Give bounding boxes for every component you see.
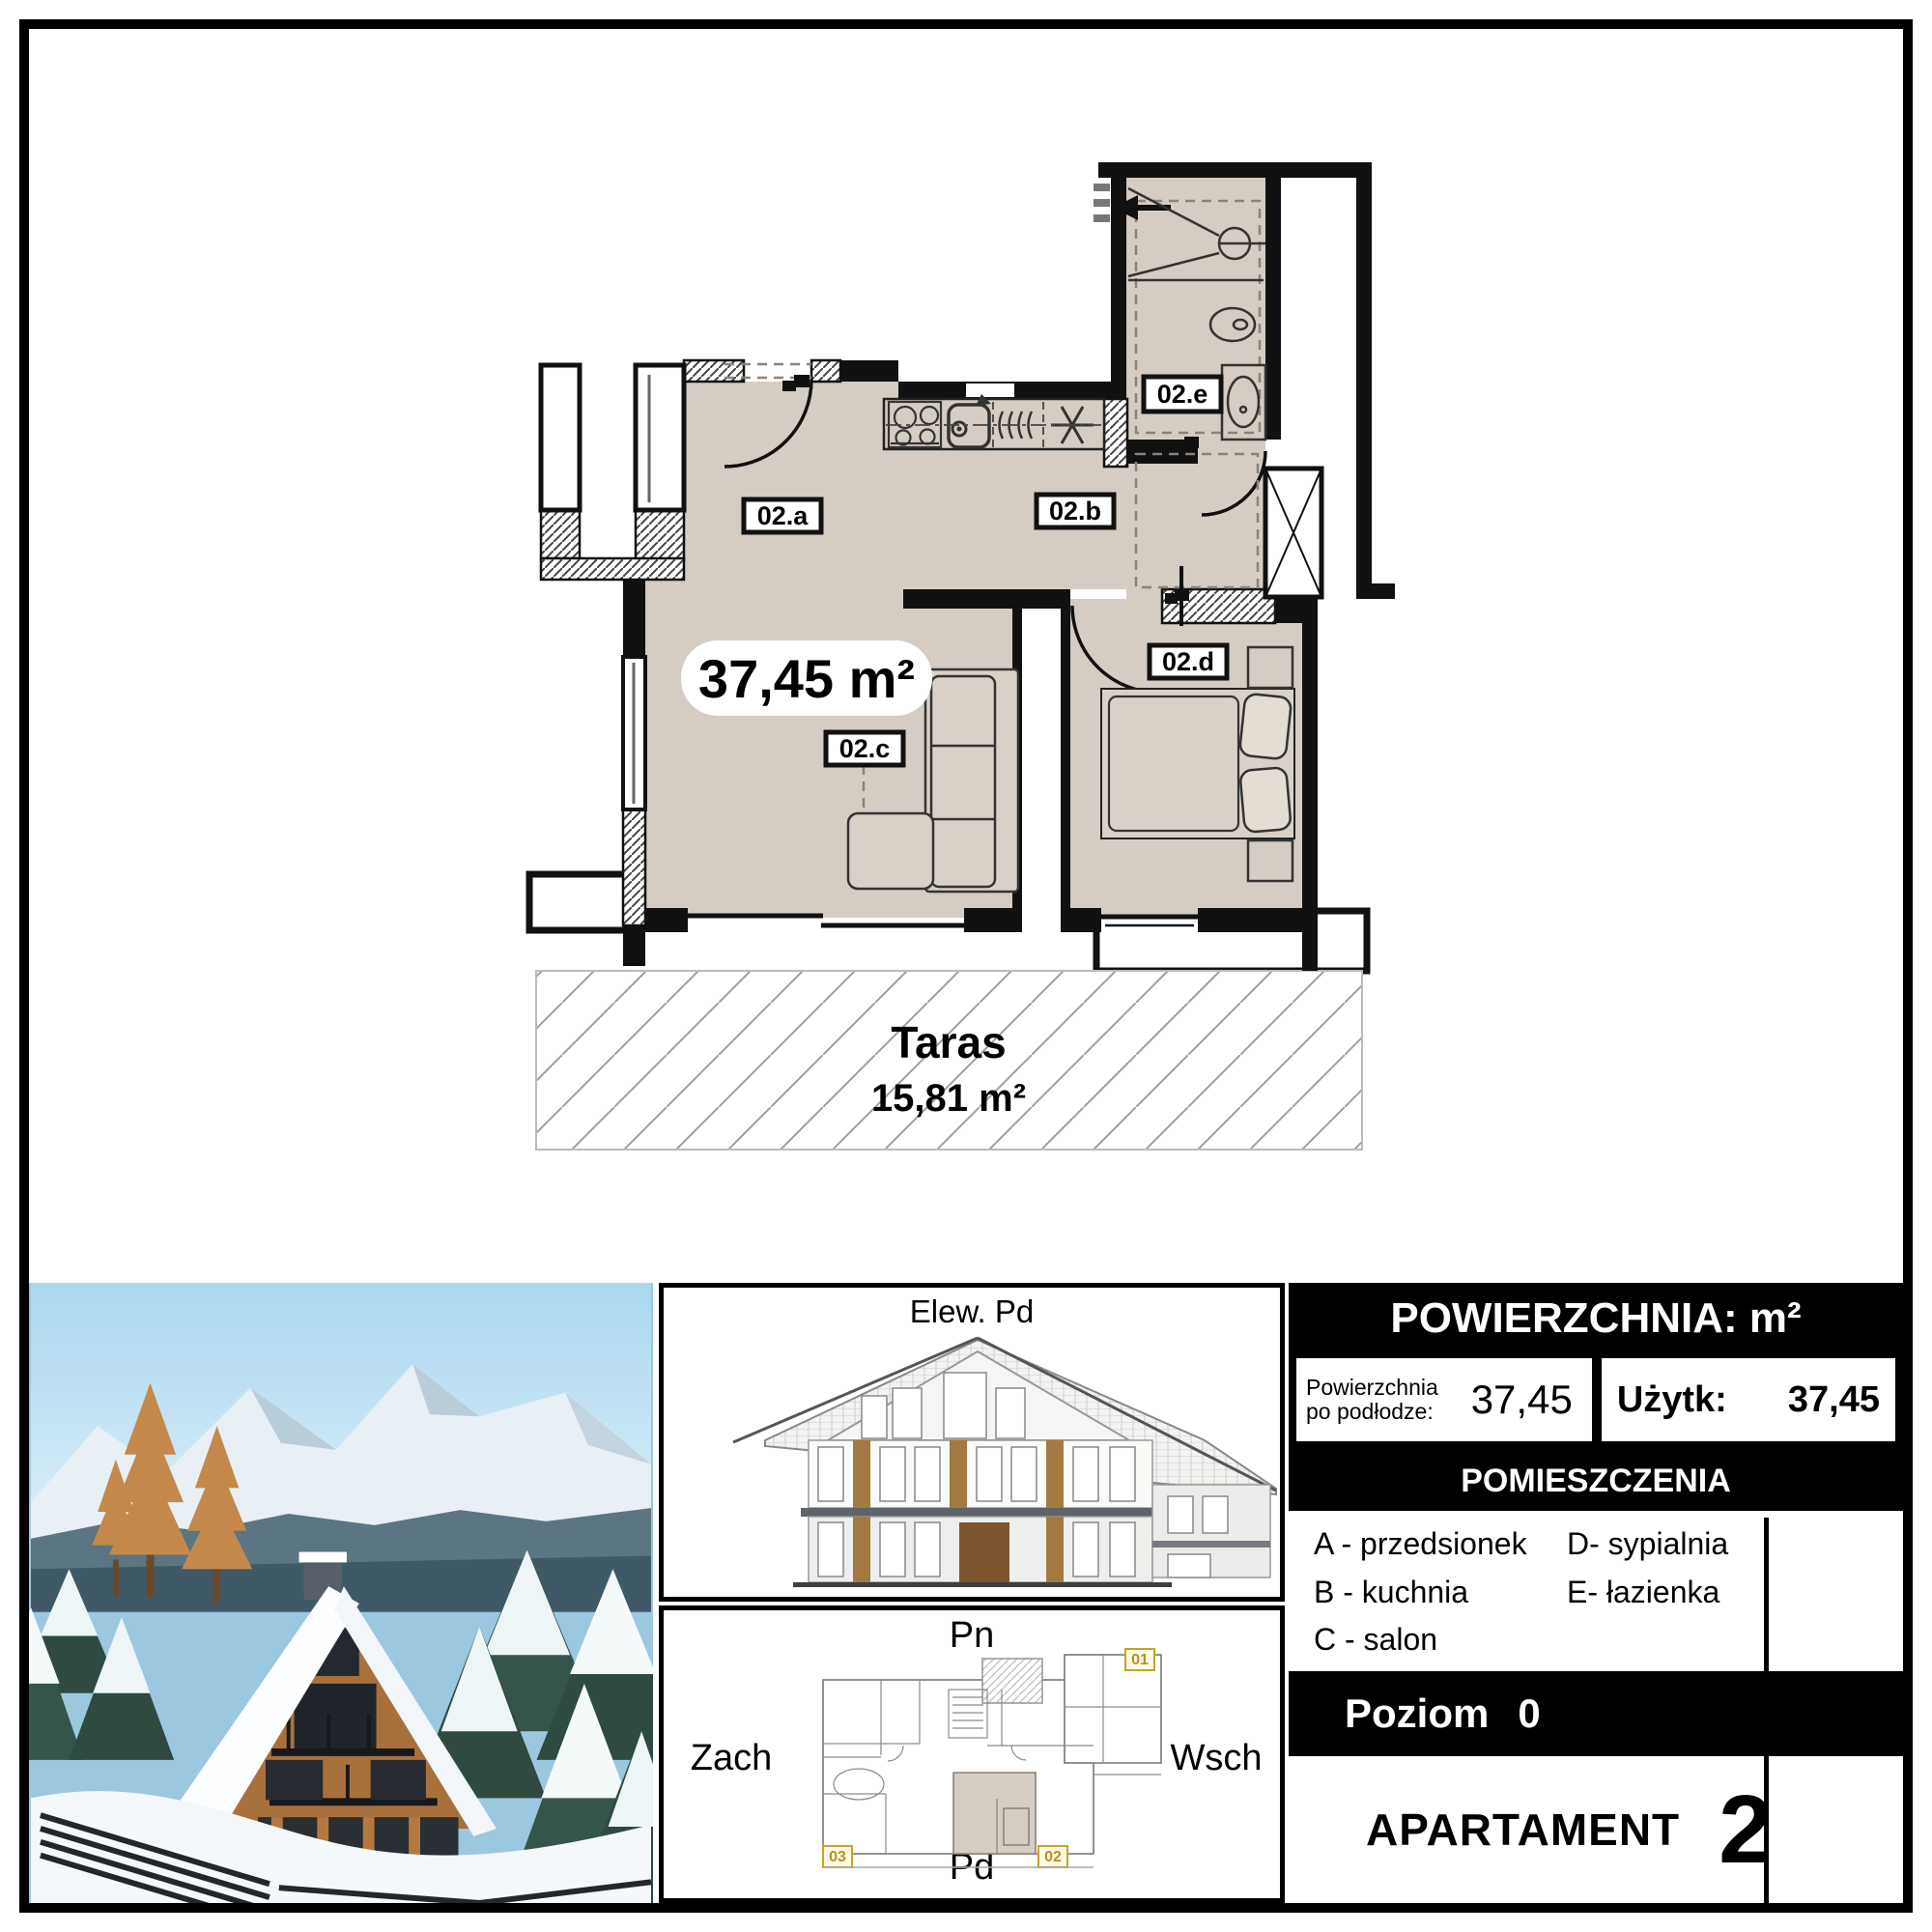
area-cells: Powierzchnia po podłodze: 37,45 Użytk: 3…: [1296, 1358, 1895, 1441]
shaft-x-box: [1265, 469, 1321, 597]
wall-ticks: [1094, 184, 1110, 222]
room-label-text: 02.a: [757, 501, 810, 530]
winter-photo-illustration: [29, 1283, 653, 1903]
floor-plan: Taras 15,81 m²: [406, 116, 1439, 1188]
room-label-02a: 02.a: [744, 499, 821, 532]
room-label-text: 02.c: [839, 734, 891, 763]
middle-column: Elew. Pd: [659, 1283, 1285, 1903]
room-label-02c: 02.c: [826, 732, 903, 765]
room-label-text: 02.e: [1157, 380, 1208, 409]
legend-item-c: C - salon: [1314, 1616, 1527, 1664]
unit-marker-03: 03: [829, 1849, 846, 1865]
info-panel-divider: [1764, 1518, 1769, 1903]
terrace-area: 15,81 m²: [871, 1077, 1026, 1120]
highlighted-unit-02: [953, 1773, 1036, 1854]
floor-area-label-line1: Powierzchnia: [1306, 1376, 1438, 1400]
floor-area-label-line2: po podłodze:: [1306, 1400, 1438, 1424]
rooms-header: POMIESZCZENIA: [1289, 1451, 1903, 1511]
floor-area-cell: Powierzchnia po podłodze: 37,45: [1296, 1358, 1592, 1441]
floor-area-value: 37,45: [1471, 1377, 1573, 1423]
bed: [1101, 689, 1294, 838]
unit-marker-02: 02: [1044, 1849, 1062, 1865]
room-label-02d: 02.d: [1150, 645, 1227, 678]
apartment-area-label: 37,45 m²: [681, 640, 932, 716]
level-label: Poziom: [1345, 1690, 1489, 1737]
compass-north: Pn: [950, 1615, 994, 1656]
exterior-wall-footing-left: [529, 874, 638, 930]
legend-left-column: A - przedsionek B - kuchnia C - salon: [1314, 1520, 1527, 1664]
legend-item-d: D- sypialnia: [1567, 1520, 1728, 1569]
room-label-text: 02.b: [1049, 497, 1101, 526]
level-band: Poziom 0: [1289, 1674, 1903, 1753]
rooms-legend: A - przedsionek B - kuchnia C - salon D-…: [1289, 1511, 1903, 1671]
terrace-name: Taras: [891, 1017, 1006, 1067]
compass-east: Wsch: [1171, 1738, 1263, 1778]
room-label-02e: 02.e: [1144, 377, 1221, 412]
level-value: 0: [1518, 1690, 1540, 1737]
pillow: [1239, 767, 1291, 833]
winter-house-photo: [29, 1283, 653, 1903]
legend-right-column: D- sypialnia E- łazienka: [1567, 1520, 1728, 1616]
pillow: [1239, 694, 1292, 760]
legend-item-b: B - kuchnia: [1314, 1569, 1527, 1617]
legend-item-a: A - przedsionek: [1314, 1520, 1527, 1569]
elevation-title: Elew. Pd: [910, 1293, 1034, 1329]
apartment-label: APARTAMENT: [1366, 1804, 1680, 1856]
kitchen-counter: [884, 394, 1104, 449]
area-header: POWIERZCHNIA: m²: [1289, 1283, 1903, 1354]
elevation-drawing: Elew. Pd: [664, 1288, 1280, 1587]
window-offset-column: [541, 365, 580, 510]
usable-area-cell: Użytk: 37,45: [1602, 1358, 1895, 1441]
usable-area-label: Użytk:: [1617, 1379, 1727, 1421]
usable-area-value: 37,45: [1788, 1379, 1880, 1421]
area-text: 37,45 m²: [698, 648, 915, 709]
site-plan-drawing: Pn Zach Wsch Pd: [664, 1610, 1280, 1889]
room-label-02b: 02.b: [1037, 495, 1114, 527]
legend-item-e: E- łazienka: [1567, 1569, 1728, 1617]
site-plan-panel: Pn Zach Wsch Pd: [659, 1605, 1285, 1903]
room-label-text: 02.d: [1162, 647, 1214, 676]
entrance-door: [959, 1522, 1009, 1582]
elevation-panel: Elew. Pd: [659, 1283, 1285, 1602]
info-panel: POWIERZCHNIA: m² Powierzchnia po podłodz…: [1289, 1283, 1903, 1903]
nightstand: [1248, 840, 1293, 881]
unit-marker-01: 01: [1131, 1652, 1149, 1668]
nightstand: [1248, 647, 1293, 688]
window-top-left: [636, 365, 684, 510]
terrace: Taras 15,81 m²: [536, 971, 1362, 1150]
floor-area-label: Powierzchnia po podłodze:: [1306, 1376, 1438, 1424]
compass-west: Zach: [691, 1738, 772, 1778]
apartment-row: APARTAMENT 2: [1289, 1756, 1903, 1903]
